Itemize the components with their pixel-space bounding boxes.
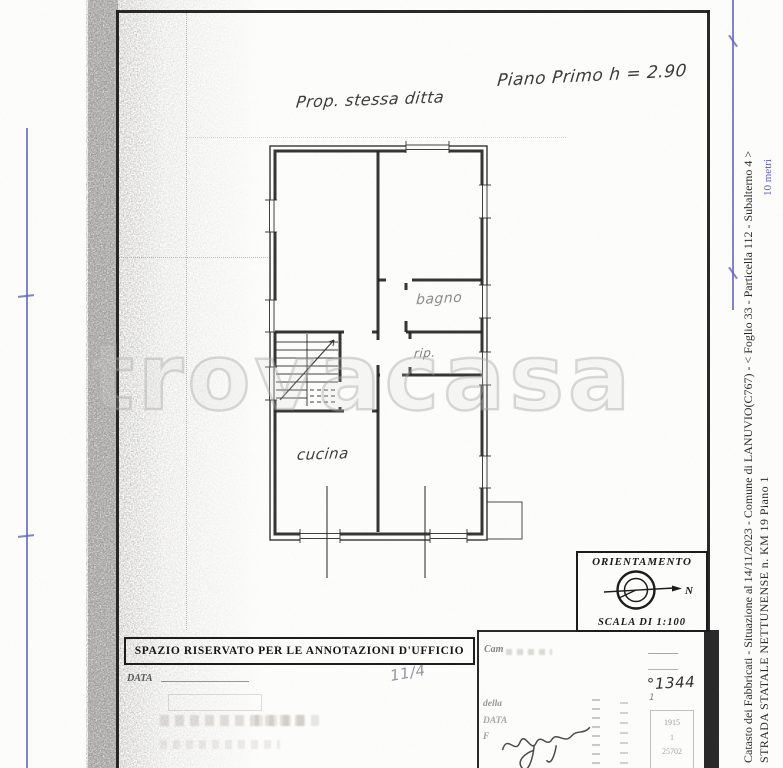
orientation-title: ORIENTAMENTO [578, 556, 706, 568]
orientation-box: ORIENTAMENTO N SCALA DI 1:100 [576, 551, 708, 632]
scale-bar-right-line [732, 0, 734, 310]
frame-left-border [116, 10, 119, 768]
faded-number-2: 1 [651, 733, 693, 742]
margin-address-line: STRADA STATALE NETTUNENSE n. KM 19 Piano… [757, 476, 772, 763]
faded-number-1: 1915 [651, 718, 693, 727]
faded-label-cartella: Cam [484, 644, 503, 655]
margin-catasto-line: Catasto dei Fabbricati - Situazione al 1… [741, 151, 756, 763]
fold-line-vertical [186, 12, 187, 630]
data-line [161, 681, 249, 682]
faded-stamp-text [160, 740, 280, 749]
frame-right-thick-bar [704, 630, 719, 768]
scanned-cadastral-document: 10 metri Prop. stessa ditta Piano Primo … [0, 0, 783, 768]
faded-label-della: della [483, 699, 502, 709]
room-label-cucina: cucina [296, 444, 350, 464]
faded-tick-column [620, 696, 628, 764]
faded-number-3: 25702 [651, 747, 693, 756]
faded-line [648, 653, 678, 654]
frame-right-border [707, 10, 710, 632]
faded-line [648, 669, 678, 670]
annotation-divider-vertical [477, 630, 479, 768]
signature-scribble [496, 712, 600, 768]
handwritten-property-note: Prop. stessa ditta [295, 87, 445, 111]
faded-number-box: 1915 1 25702 [650, 710, 694, 768]
faded-stamp-text [255, 715, 325, 726]
faded-stamp-box [168, 694, 262, 711]
scale-bar-label: 10 metri [762, 159, 774, 196]
handwritten-protocol-number: °1344 [647, 673, 696, 693]
faded-text-trail [506, 649, 552, 655]
scale-bar-left-line [26, 128, 28, 768]
handwritten-floor-note: Piano Primo h = 2.90 [496, 61, 687, 91]
faded-label-firma: F [483, 732, 489, 742]
north-label: N [684, 585, 694, 597]
frame-top-border [116, 10, 710, 13]
handwritten-small-one: 1 [649, 693, 655, 703]
compass-icon: N [586, 568, 698, 612]
fold-line-horizontal [118, 257, 268, 258]
room-label-bagno: bagno [416, 290, 463, 308]
data-label: DATA [127, 673, 153, 684]
orientation-scale-label: SCALA DI 1:100 [578, 617, 706, 628]
room-label-rip: rip. [414, 346, 437, 361]
floor-plan-drawing [260, 138, 530, 586]
